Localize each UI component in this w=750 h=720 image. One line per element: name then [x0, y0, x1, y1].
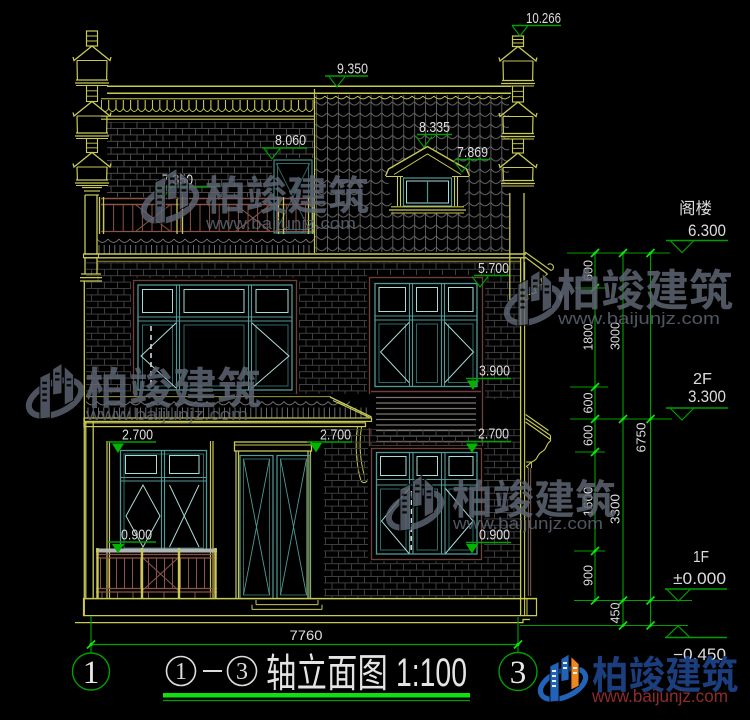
- svg-text:2.700: 2.700: [122, 427, 153, 444]
- svg-text:9.350: 9.350: [337, 61, 368, 78]
- svg-text:www.baijunjz.com: www.baijunjz.com: [205, 214, 356, 233]
- svg-text:3: 3: [510, 655, 527, 691]
- svg-text:600: 600: [581, 393, 596, 414]
- svg-text:10.266: 10.266: [526, 10, 561, 27]
- svg-text:6750: 6750: [634, 423, 649, 453]
- svg-text:5.700: 5.700: [478, 260, 509, 277]
- svg-text:3300: 3300: [608, 494, 623, 524]
- svg-text:7760: 7760: [290, 627, 323, 643]
- svg-text:8.060: 8.060: [275, 132, 306, 149]
- svg-text:3.900: 3.900: [479, 363, 510, 380]
- svg-text:7.869: 7.869: [457, 144, 488, 161]
- svg-text:2F: 2F: [693, 371, 712, 388]
- svg-text:www.baijunjz.com: www.baijunjz.com: [557, 309, 720, 328]
- svg-text:900: 900: [581, 565, 596, 586]
- svg-text:450: 450: [608, 603, 623, 624]
- svg-text:0.900: 0.900: [121, 527, 152, 544]
- svg-text:www.baijunjz.com: www.baijunjz.com: [85, 405, 248, 424]
- svg-text:600: 600: [581, 425, 596, 446]
- svg-text:6.300: 6.300: [688, 222, 726, 240]
- svg-text:3: 3: [236, 659, 248, 685]
- svg-text:1F: 1F: [693, 549, 709, 566]
- svg-text:2.700: 2.700: [478, 426, 509, 443]
- svg-text:1: 1: [83, 655, 100, 691]
- svg-text:1:100: 1:100: [396, 651, 467, 695]
- svg-text:8.335: 8.335: [419, 119, 450, 136]
- svg-text:www.baijunjz.com: www.baijunjz.com: [452, 514, 603, 533]
- svg-text:www.baijunjz.com: www.baijunjz.com: [591, 686, 728, 706]
- svg-text:±0.000: ±0.000: [673, 570, 726, 588]
- svg-text:1: 1: [175, 659, 187, 685]
- svg-text:3.300: 3.300: [688, 388, 726, 406]
- svg-text:2.700: 2.700: [320, 427, 351, 444]
